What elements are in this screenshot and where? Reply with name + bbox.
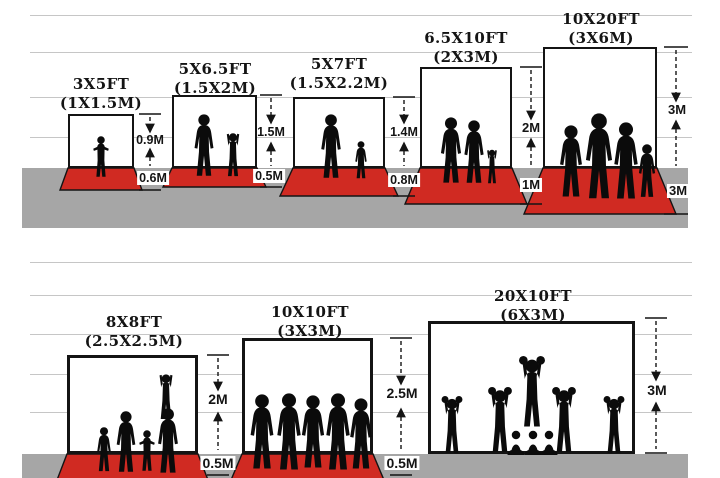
panel-size-m: (3X6M) [562,29,640,48]
size-comparison-diagram: 3X5FT (1X1.5M) 5X6.5FT (1.5X2M) 5X7FT (1… [0,0,720,478]
height-measurement-label: 2.5M [386,386,417,400]
panel-size-ft: 20X10FT [494,287,572,306]
panel-size-ft: 6.5X10FT [424,29,508,48]
floor-measurement-label: 1M [520,178,542,192]
floor-measurement-label: 0.5M [384,456,419,470]
panel-size-ft: 5X6.5FT [174,60,256,79]
panel-size-ft: 5X7FT [290,55,389,74]
height-measurement-label: 1.5M [257,125,285,139]
panel-size-m: (1.5X2M) [174,79,256,98]
floor-measurement-label: 0.6M [137,171,169,185]
panel-title-10x10: 10X10FT (3X3M) [271,303,349,341]
panel-size-m: (2.5X2.5M) [85,332,184,351]
floor-measurement-label: 0.5M [253,169,285,183]
height-measurement-label: 2M [208,392,227,406]
floor-measurement-label: 0.5M [200,456,235,470]
panel-size-ft: 10X10FT [271,303,349,322]
panel-size-m: (2X3M) [424,48,508,67]
floor-measurement-label: 0.8M [388,173,420,187]
panel-size-m: (1.5X2.2M) [290,74,389,93]
panel-size-ft: 3X5FT [60,75,142,94]
panel-title-5x6-5: 5X6.5FT (1.5X2M) [174,60,256,98]
panel-size-m: (6X3M) [494,306,572,325]
panel-title-20x10: 20X10FT (6X3M) [494,287,572,325]
panel-title-8x8: 8X8FT (2.5X2.5M) [85,313,184,351]
height-measurement-label: 1.4M [390,125,418,139]
height-measurement-label: 2M [522,121,540,135]
panel-title-5x7: 5X7FT (1.5X2.2M) [290,55,389,93]
panel-title-3x5: 3X5FT (1X1.5M) [60,75,142,113]
panel-size-m: (3X3M) [271,322,349,341]
floor-measurement-label: 3M [667,184,689,198]
panel-title-10x20: 10X20FT (3X6M) [562,10,640,48]
panel-size-ft: 10X20FT [562,10,640,29]
height-measurement-label: 0.9M [136,133,164,147]
panel-size-m: (1X1.5M) [60,94,142,113]
height-measurement-label: 3M [668,103,686,117]
height-measurement-label: 3M [647,383,666,397]
panel-size-ft: 8X8FT [85,313,184,332]
panel-title-6-5x10: 6.5X10FT (2X3M) [424,29,508,67]
